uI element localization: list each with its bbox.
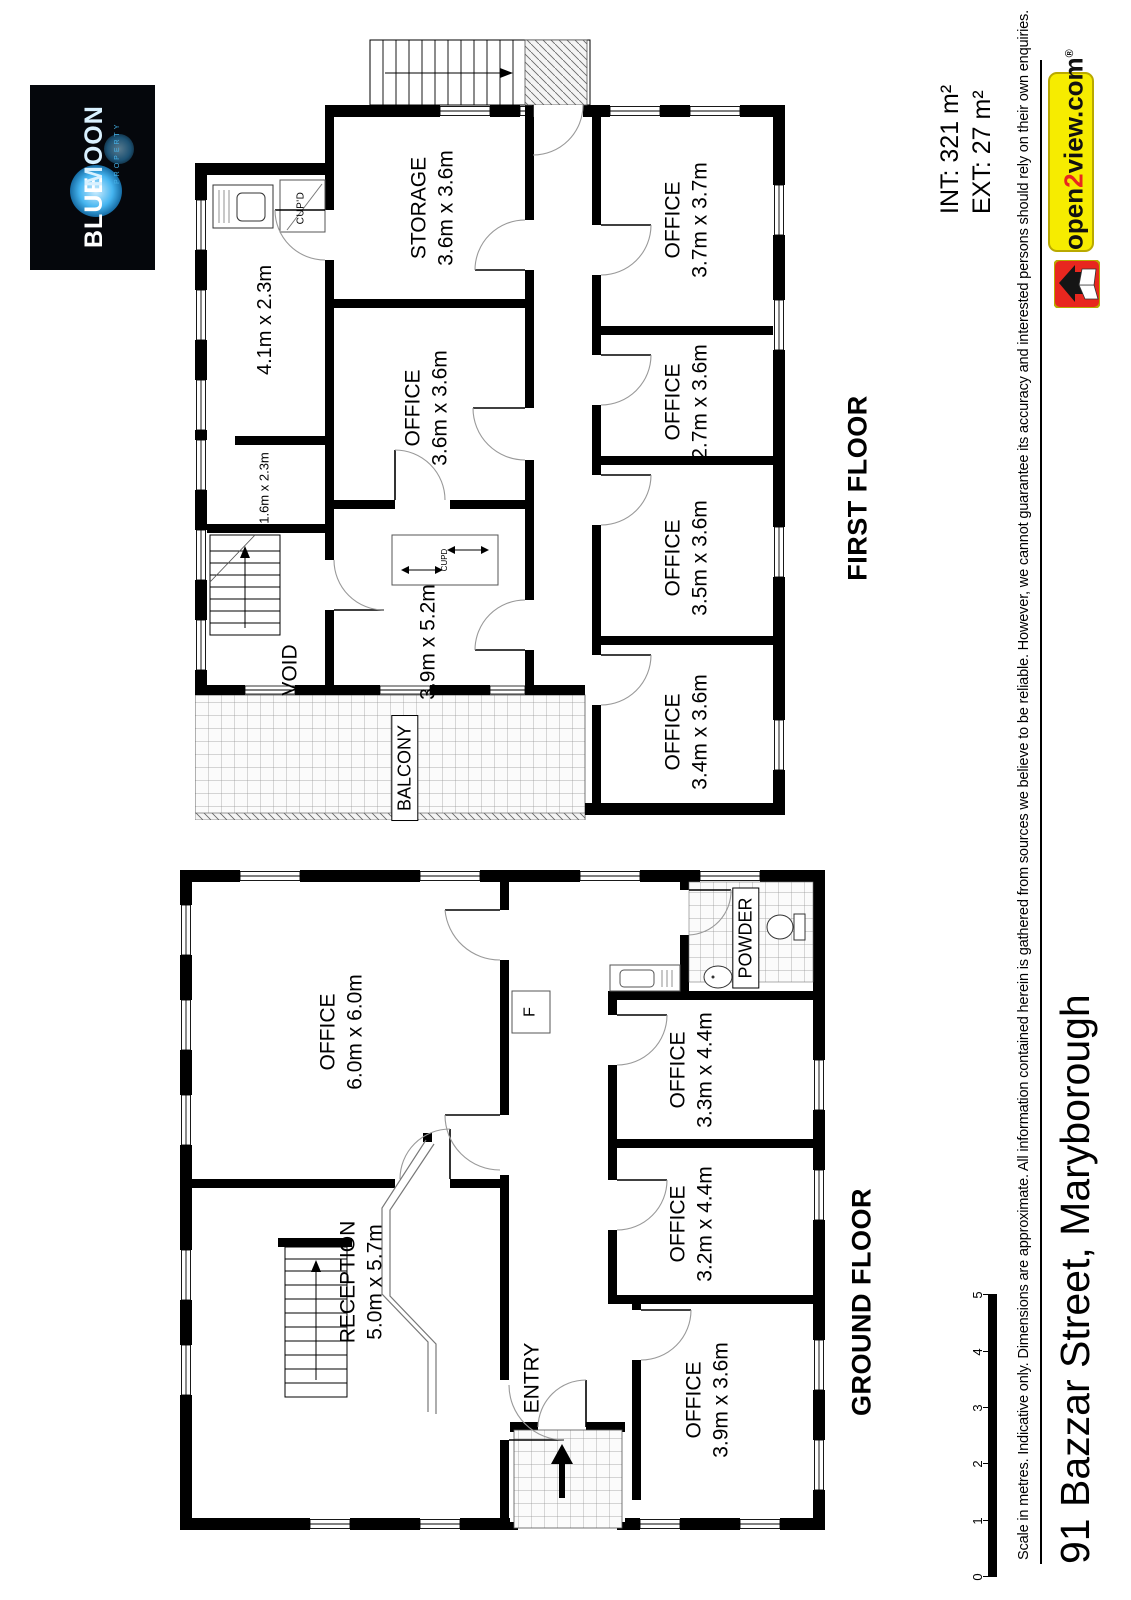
logo-word-moon: MOON — [80, 105, 109, 187]
blue-moon-logo: BLUE MOON PROPERTY — [30, 85, 155, 270]
toilet-icon — [767, 914, 805, 940]
room-label-office-35x36: OFFICE3.5m x 3.6m — [660, 500, 715, 616]
room-label-kitchenette: 4.1m x 2.3m — [252, 265, 278, 375]
room-label-entry: ENTRY — [518, 1343, 545, 1414]
room-label-balcony: BALCONY — [391, 715, 418, 821]
room-label-small-room: 1.6m x 2.3m — [257, 452, 274, 524]
scale-bar-line — [988, 1294, 997, 1577]
sink-icon — [610, 965, 680, 991]
internal-area: INT: 321 m² — [934, 85, 966, 214]
room-label-void: VOID — [276, 644, 303, 695]
open2view-word-post: view.com — [1059, 57, 1089, 173]
floor-areas: INT: 321 m² EXT: 27 m² — [934, 85, 998, 214]
property-address: 91 Bazzar Street, Maryborough — [1052, 994, 1099, 1564]
open2view-banner: open2view.com® — [1048, 72, 1094, 252]
first-floor-plan: STORAGE3.6m x 3.6m OFFICE3.7m x 3.7m OFF… — [195, 35, 785, 820]
scale-tick: 1 — [970, 1517, 985, 1524]
cupd-small-label: CUPD — [440, 549, 450, 572]
open2view-house-icon — [1054, 260, 1100, 308]
registered-mark: ® — [1064, 49, 1076, 57]
ground-floor-plan: OFFICE6.0m x 6.0m RECEPTION5.0m x 5.7m O… — [180, 870, 825, 1530]
sink-icon — [213, 185, 273, 228]
external-stairs-icon — [370, 40, 590, 155]
disclaimer-text: Scale in metres. Indicative only. Dimens… — [1016, 60, 1032, 1560]
logo-tagline: PROPERTY — [114, 122, 121, 184]
room-label-office-32x44: OFFICE3.2m x 4.4m — [665, 1166, 720, 1282]
room-label-office-27x36: OFFICE2.7m x 3.6m — [660, 344, 715, 460]
entry-porch-tiles — [514, 1430, 622, 1528]
scale-tick: 0 — [970, 1573, 985, 1580]
balcony-tiles — [195, 695, 585, 820]
basin-icon — [704, 966, 732, 988]
room-label-office-6x6: OFFICE6.0m x 6.0m — [315, 974, 370, 1090]
floorplan-sheet: OFFICE6.0m x 6.0m RECEPTION5.0m x 5.7m O… — [0, 0, 1131, 1600]
room-label-reception: RECEPTION5.0m x 5.7m — [335, 1221, 390, 1344]
first-floor-title: FIRST FLOOR — [843, 395, 874, 580]
ground-floor-title: GROUND FLOOR — [847, 1188, 878, 1416]
open2view-word-pre: open — [1059, 188, 1089, 250]
scale-tick: 2 — [970, 1460, 985, 1467]
stage: OFFICE6.0m x 6.0m RECEPTION5.0m x 5.7m O… — [0, 0, 1131, 1600]
room-label-office-37x37: OFFICE3.7m x 3.7m — [660, 162, 715, 278]
open2view-word-two: 2 — [1059, 173, 1089, 187]
fridge-label: F — [521, 1007, 542, 1017]
first-floor-stairs-icon — [210, 535, 280, 635]
cupd-label: CUP'D — [295, 192, 308, 225]
scale-tick: 5 — [970, 1291, 985, 1298]
room-label-office-39x36: OFFICE3.9m x 3.6m — [681, 1342, 736, 1458]
room-label-storage: STORAGE3.6m x 3.6m — [406, 150, 461, 266]
scale-tick: 3 — [970, 1404, 985, 1411]
scale-tick: 4 — [970, 1348, 985, 1355]
room-label-office-36x36: OFFICE3.6m x 3.6m — [400, 350, 455, 466]
external-area: EXT: 27 m² — [966, 85, 998, 214]
room-label-office-33x44: OFFICE3.3m x 4.4m — [665, 1012, 720, 1128]
room-label-landing: 3.9m x 5.2m — [414, 584, 441, 700]
footer-rule — [1040, 60, 1042, 1564]
room-label-office-34x36: OFFICE3.4m x 3.6m — [660, 674, 715, 790]
room-label-powder: POWDER — [732, 888, 759, 989]
